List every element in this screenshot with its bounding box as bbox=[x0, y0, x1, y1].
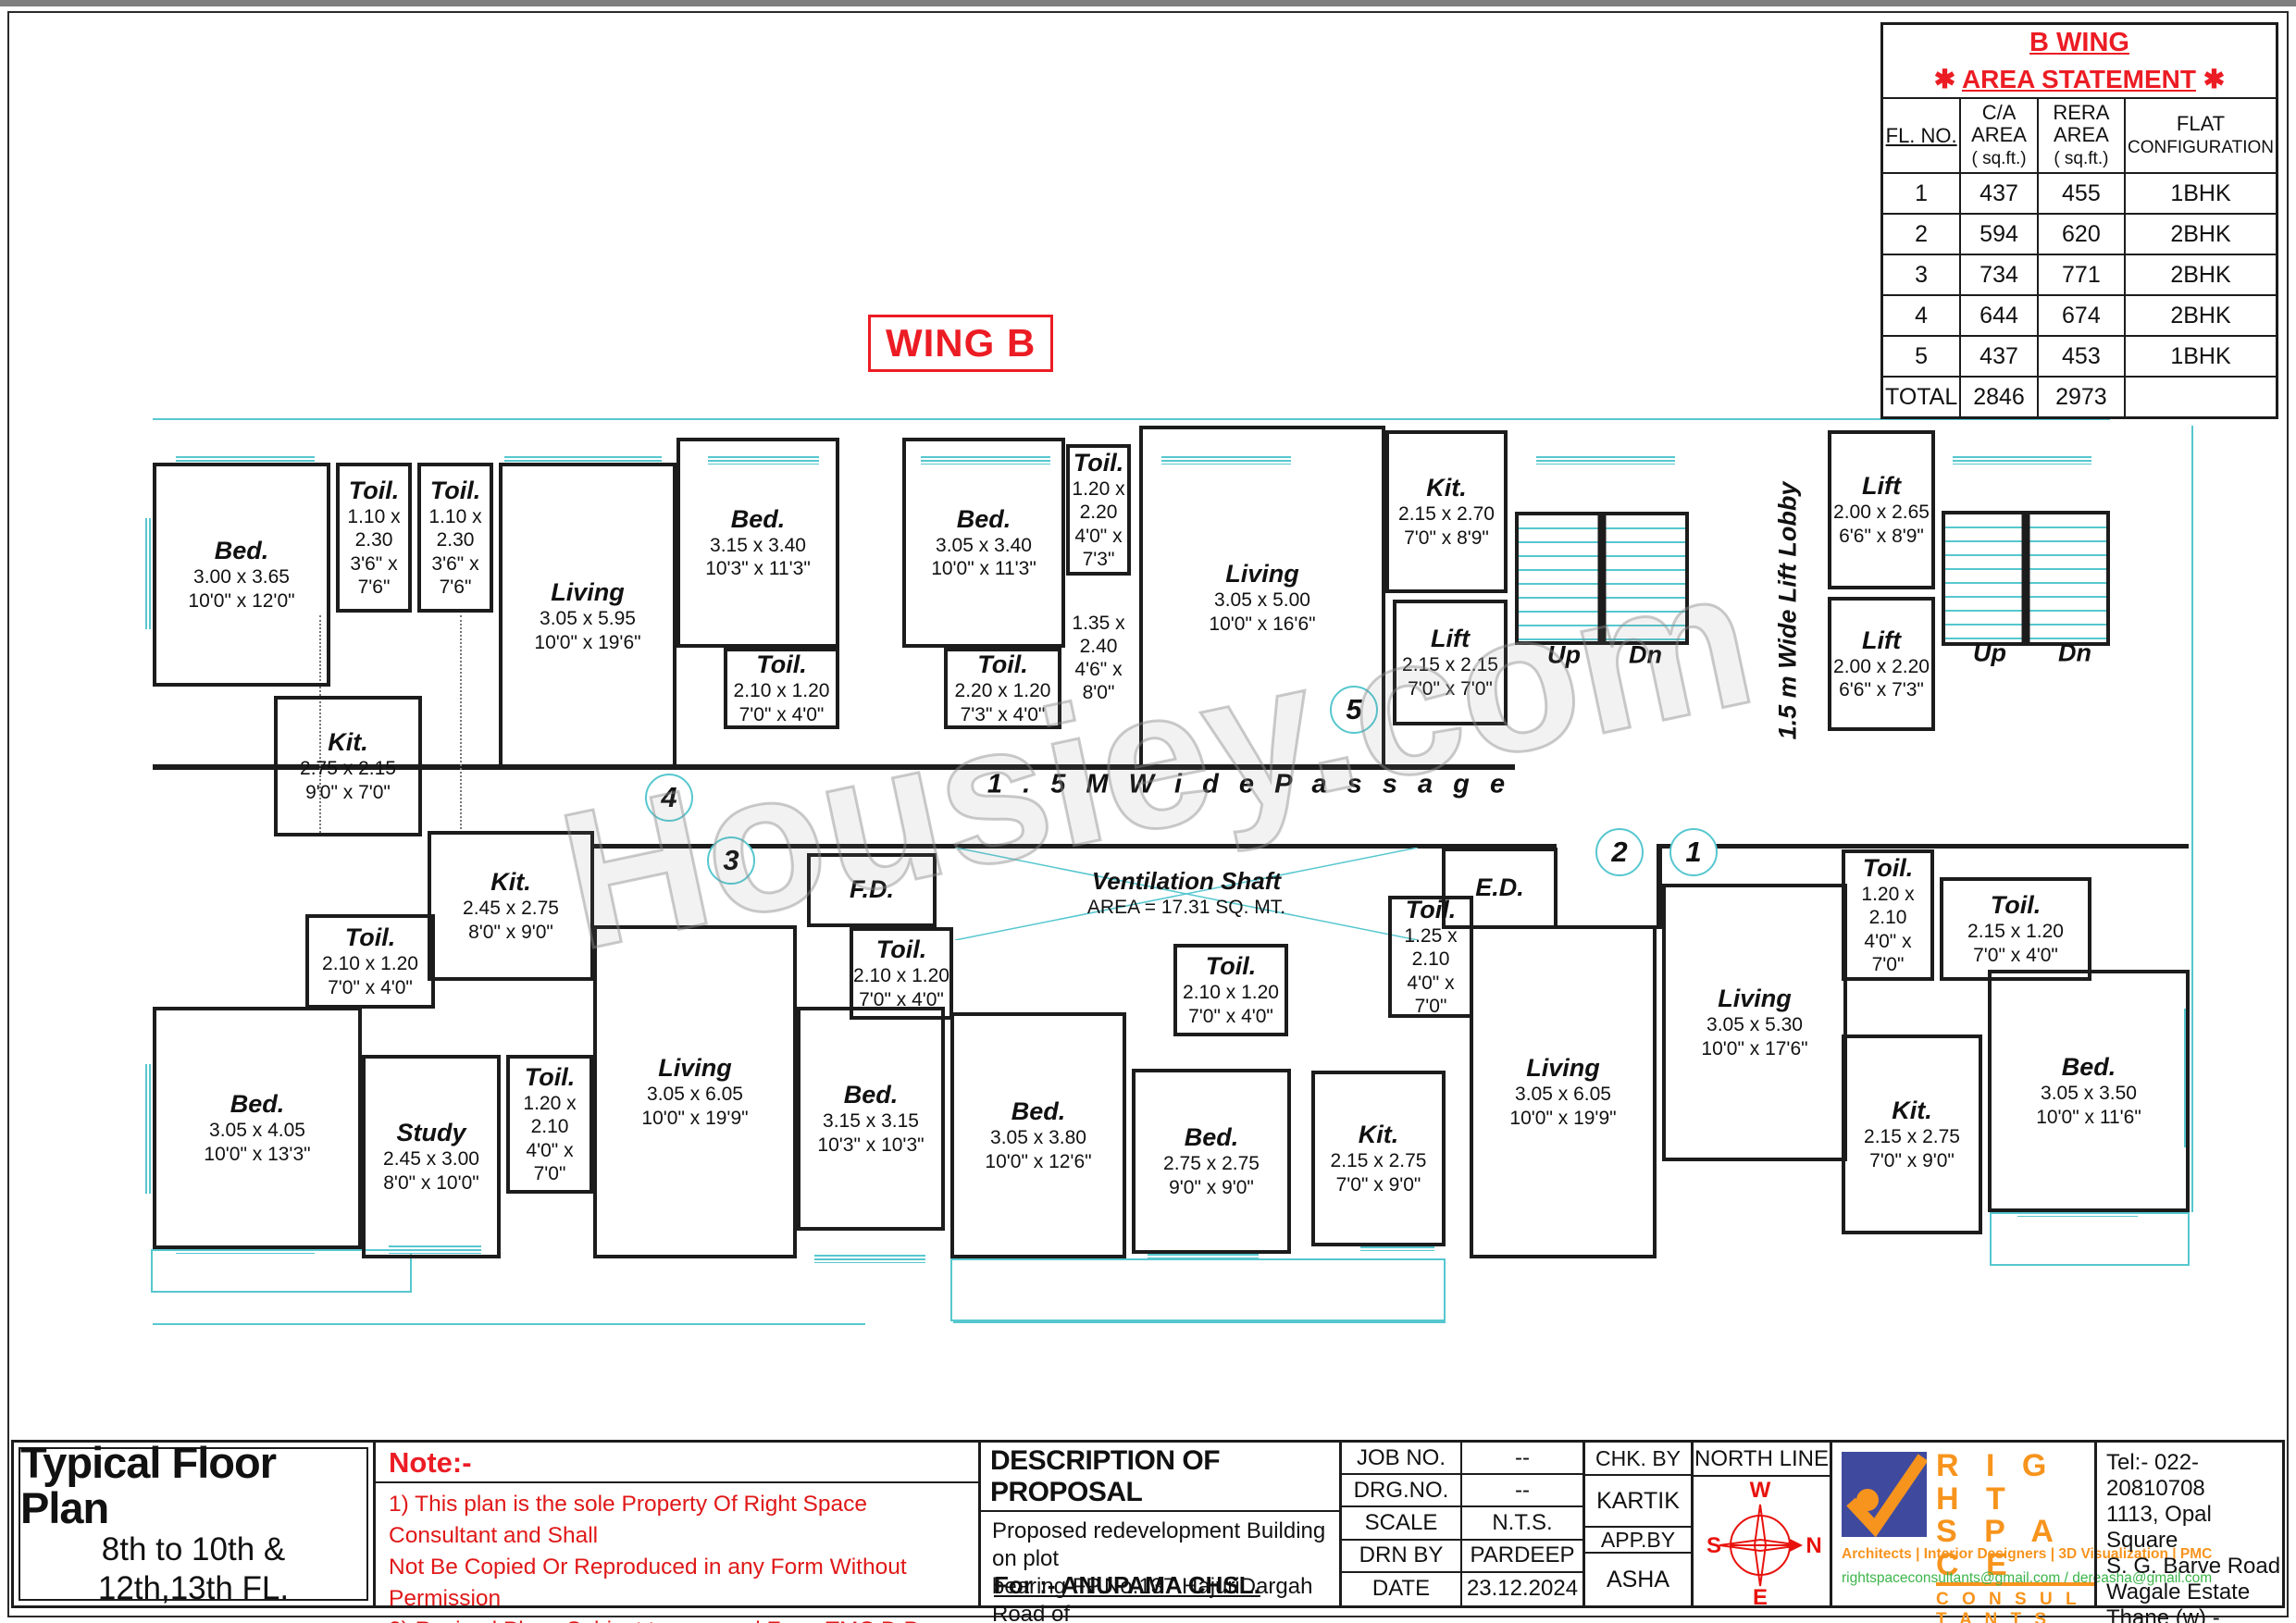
area-cell: 2BHK bbox=[2125, 295, 2277, 336]
room-dimension: 3.00 x 3.65 bbox=[193, 565, 290, 588]
accent-line bbox=[153, 418, 2110, 420]
note-line: Not Be Copied Or Reproduced in any Form … bbox=[389, 1552, 969, 1615]
room-name: Toil. bbox=[1074, 449, 1124, 477]
note-title: Note:- bbox=[376, 1443, 978, 1483]
room-dimension: 10'0" x 11'6" bbox=[2036, 1106, 2141, 1129]
room-name: Toil. bbox=[349, 477, 400, 505]
wall-segment bbox=[1662, 844, 2189, 849]
project-row-value: 23.12.2024 bbox=[1462, 1573, 1582, 1605]
room-toil: Toil.1.20 x2.204'0" x7'3" bbox=[1066, 444, 1131, 576]
room-toil: Toil.1.20 x2.104'0" x7'0" bbox=[1842, 849, 1934, 981]
room-name: Lift bbox=[1862, 472, 1901, 501]
area-cell: 674 bbox=[2038, 295, 2125, 336]
room-name: Kit. bbox=[490, 868, 531, 897]
room-name: Bed. bbox=[230, 1090, 285, 1119]
room-dimension: 6'6" x 8'9" bbox=[1839, 525, 1924, 548]
room-dimension: 10'0" x 19'6" bbox=[534, 631, 640, 654]
room-dimension: 2.75 x 2.15 bbox=[300, 757, 396, 780]
passage-label: 1 . 5 M W i d e P a s s a g e bbox=[987, 770, 1511, 800]
description-title: DESCRIPTION OF PROPOSAL bbox=[981, 1443, 1339, 1512]
project-row-label: SCALE bbox=[1342, 1507, 1462, 1538]
flat-number-badge: 4 bbox=[645, 774, 693, 822]
room-dimension: 4'0" x bbox=[526, 1139, 573, 1162]
area-cell: 437 bbox=[1960, 336, 2038, 377]
contact-line: 1113, Opal Square bbox=[2106, 1502, 2282, 1554]
contact-line: Tel:- 022-20810708 bbox=[2106, 1450, 2282, 1502]
room-dimension: 3'6" x bbox=[431, 552, 478, 576]
room-name: Lift bbox=[1862, 626, 1901, 655]
area-cell: 594 bbox=[1960, 214, 2038, 254]
room-dimension: 1.20 x bbox=[1072, 477, 1124, 501]
area-cell: 1BHK bbox=[2125, 336, 2277, 377]
room-bed: Bed.3.15 x 3.1510'3" x 10'3" bbox=[797, 1007, 945, 1231]
room-living: Living3.05 x 5.9510'0" x 19'6" bbox=[499, 463, 676, 770]
project-row-label: DRN BY bbox=[1342, 1541, 1462, 1571]
area-table-subtitle: ✱ AREA STATEMENT ✱ bbox=[1882, 61, 2277, 98]
approval-cell: CHK. BY bbox=[1585, 1443, 1691, 1476]
room-dimension: AREA = 17.31 SQ. MT. bbox=[1087, 896, 1285, 919]
room-living: Living3.05 x 6.0510'0" x 19'9" bbox=[1470, 925, 1657, 1258]
room-toil: Toil.1.10 x2.303'6" x7'6" bbox=[336, 463, 412, 613]
room-fd: F.D. bbox=[807, 853, 937, 927]
updn-label: Dn bbox=[1629, 641, 1662, 670]
room-kit: Kit.2.15 x 2.757'0" x 9'0" bbox=[1311, 1071, 1446, 1246]
room-dimension: 3.05 x 3.80 bbox=[990, 1126, 1086, 1149]
room-dimension: 2.10 x 1.20 bbox=[322, 952, 418, 975]
room-dimension: 3.05 x 4.05 bbox=[209, 1119, 305, 1142]
room-dimension: 10'3" x 11'3" bbox=[705, 557, 811, 580]
lobby-label: 1.5 m Wide Lift Lobby bbox=[1774, 482, 1803, 740]
room-dimension: 3'6" x bbox=[350, 552, 397, 576]
project-row-value: -- bbox=[1462, 1443, 1582, 1473]
project-row-label: JOB NO. bbox=[1342, 1443, 1462, 1473]
room-dimension: 8'0" x 10'0" bbox=[383, 1171, 479, 1195]
wing-title: WING B bbox=[868, 315, 1053, 372]
svg-text:S: S bbox=[1706, 1533, 1721, 1558]
room-dimension: 1.35 x bbox=[1072, 612, 1124, 635]
room-dimension: 4'0" x bbox=[1407, 972, 1454, 995]
room-dimension: 2.30 bbox=[355, 528, 393, 551]
room-dimension: 7'0" x 7'0" bbox=[1408, 677, 1493, 700]
updn-label: Dn bbox=[2058, 639, 2091, 668]
room-dimension: 4'6" x bbox=[1074, 658, 1122, 681]
accent-line bbox=[153, 1323, 865, 1325]
room-name: Bed. bbox=[215, 537, 269, 565]
room-name: Bed. bbox=[1185, 1123, 1239, 1152]
note-line: 2) Revised Plans Subject to approval Fro… bbox=[389, 1615, 969, 1623]
project-row: DRN BY PARDEEP bbox=[1342, 1541, 1582, 1573]
approval-cell: ASHA bbox=[1585, 1554, 1691, 1605]
room-dimension: 10'0" x 13'3" bbox=[204, 1143, 310, 1166]
area-table-title: B WING bbox=[1882, 24, 2277, 62]
panel-contact: Tel:- 022-208107081113, Opal SquareS. G.… bbox=[2094, 1443, 2282, 1605]
area-cell: 734 bbox=[1960, 254, 2038, 295]
room-living: Living3.05 x 5.3010'0" x 17'6" bbox=[1662, 884, 1847, 1161]
room-dimension: 10'0" x 16'6" bbox=[1209, 613, 1315, 636]
room-name: Living bbox=[658, 1054, 732, 1083]
room-dimension: 1.10 x bbox=[347, 505, 400, 528]
room-dimension: 7'0" x 4'0" bbox=[1188, 1005, 1273, 1028]
area-cell: 1BHK bbox=[2125, 173, 2277, 214]
room-name: Bed. bbox=[1011, 1097, 1066, 1126]
room-name: Toil. bbox=[977, 650, 1028, 679]
room-dimension: 2.15 x 1.20 bbox=[1967, 920, 2064, 943]
description-lines: Proposed redevelopment Building on plotb… bbox=[981, 1512, 1339, 1623]
contact-line: S. G. Barve Road bbox=[2106, 1554, 2282, 1580]
room-name: Bed. bbox=[2062, 1053, 2116, 1082]
contact-address: Tel:- 022-208107081113, Opal SquareS. G.… bbox=[2097, 1443, 2282, 1623]
project-row: JOB NO. -- bbox=[1342, 1443, 1582, 1475]
room-dimension: 6'6" x 7'3" bbox=[1839, 678, 1924, 701]
room-name: Toil. bbox=[1406, 896, 1457, 924]
panel-approvals: CHK. BYKARTIKAPP.BYASHA bbox=[1582, 1443, 1691, 1605]
room-dimension: 7'6" bbox=[440, 576, 472, 599]
room-dimension: 2.15 x 2.75 bbox=[1331, 1149, 1427, 1172]
area-col-header: FLATCONFIGURATION bbox=[2125, 98, 2277, 173]
window-marker bbox=[814, 1255, 925, 1263]
approval-cell: KARTIK bbox=[1585, 1476, 1691, 1528]
room-name: Kit. bbox=[1426, 474, 1467, 502]
panel-note: Note:- 1) This plan is the sole Property… bbox=[373, 1443, 978, 1605]
logo-mark bbox=[1842, 1452, 1927, 1537]
room-dimension: 3.05 x 5.00 bbox=[1214, 588, 1310, 612]
room-dimension: 7'0" bbox=[1872, 953, 1905, 976]
svg-text:N: N bbox=[1806, 1533, 1821, 1558]
room-dimension: 2.10 bbox=[1412, 948, 1450, 971]
flat-number-badge: 2 bbox=[1595, 828, 1644, 876]
room-dimension: 2.10 x 1.20 bbox=[853, 964, 949, 987]
project-row-value: PARDEEP bbox=[1462, 1541, 1582, 1571]
area-cell: 620 bbox=[2038, 214, 2125, 254]
room-dimension: 2.00 x 2.65 bbox=[1833, 501, 1930, 524]
flat-number-badge: 3 bbox=[707, 836, 755, 885]
room-dimension: 7'0" x 8'9" bbox=[1404, 527, 1489, 550]
panel-north: NORTH LINE W S N E bbox=[1691, 1443, 1830, 1605]
panel-logo: R I G H T S P A C E C O N S U L T A N T … bbox=[1830, 1443, 2094, 1605]
room-dimension: 7'3" bbox=[1083, 548, 1115, 571]
room-bed: Bed.3.15 x 3.4010'3" x 11'3" bbox=[676, 438, 839, 648]
room-dimension: 7'3" x 4'0" bbox=[961, 703, 1046, 726]
area-cell: 2973 bbox=[2038, 377, 2125, 418]
room-living: Living3.05 x 6.0510'0" x 19'9" bbox=[593, 925, 797, 1258]
room-dimension: 2.00 x 2.20 bbox=[1833, 655, 1930, 678]
area-cell: 1 bbox=[1882, 173, 1961, 214]
project-row-label: DRG.NO. bbox=[1342, 1475, 1462, 1505]
room-dimension: 2.20 x 1.20 bbox=[955, 679, 1051, 702]
room-dimension: 7'0" bbox=[1415, 995, 1447, 1018]
project-row-label: DATE bbox=[1342, 1573, 1462, 1605]
room-ventilationshaft: Ventilation ShaftAREA = 17.31 SQ. MT. bbox=[955, 848, 1418, 940]
room-dimension: 4'0" x bbox=[1074, 525, 1122, 548]
room-dimension: 3.05 x 6.05 bbox=[647, 1083, 743, 1106]
room-dimension: 10'0" x 12'0" bbox=[188, 589, 294, 613]
room-dimension: 3.05 x 5.95 bbox=[540, 607, 636, 630]
room-toil: Toil.2.10 x 1.207'0" x 4'0" bbox=[1173, 944, 1288, 1036]
project-row: SCALE N.T.S. bbox=[1342, 1507, 1582, 1540]
room-toil: Toil.2.15 x 1.207'0" x 4'0" bbox=[1940, 877, 2091, 981]
room-study: Study2.45 x 3.008'0" x 10'0" bbox=[362, 1055, 501, 1258]
area-cell: 2BHK bbox=[2125, 254, 2277, 295]
contact-line: Thane (w) - 400604 bbox=[2106, 1605, 2282, 1623]
area-cell: 437 bbox=[1960, 173, 2038, 214]
room-name: Toil. bbox=[345, 923, 396, 952]
room-kit: Kit.2.45 x 2.758'0" x 9'0" bbox=[428, 831, 594, 981]
checkmark-icon bbox=[1842, 1452, 1927, 1537]
balcony-strip bbox=[1990, 1212, 2190, 1266]
room-dimension: 10'0" x 12'6" bbox=[985, 1150, 1091, 1173]
project-row: DATE 23.12.2024 bbox=[1342, 1573, 1582, 1605]
room-name: Bed. bbox=[844, 1081, 899, 1109]
area-cell: 5 bbox=[1882, 336, 1961, 377]
room-bed: Bed.3.05 x 3.5010'0" x 11'6" bbox=[1988, 970, 2190, 1212]
room-dimension: 2.10 x 1.20 bbox=[1183, 981, 1279, 1004]
room-dimension: 10'3" x 10'3" bbox=[817, 1134, 924, 1157]
room-name: Living bbox=[551, 578, 625, 607]
room-name: Toil. bbox=[1206, 952, 1257, 981]
flat-number-badge: 1 bbox=[1669, 828, 1718, 876]
room-toil: Toil.2.10 x 1.207'0" x 4'0" bbox=[305, 914, 435, 1009]
area-cell: 2 bbox=[1882, 214, 1961, 254]
room-kit: Kit.2.75 x 2.159'0" x 7'0" bbox=[274, 696, 422, 836]
for-client-line: For :- ANUPAMA CHSL. bbox=[994, 1571, 1260, 1600]
room-dimension: 7'0" bbox=[534, 1162, 566, 1185]
room-dimension: 1.20 x bbox=[523, 1092, 576, 1115]
room-name: Toil. bbox=[1863, 854, 1914, 883]
panel-project-table: JOB NO. -- DRG.NO. -- SCALE N.T.S. DRN B… bbox=[1339, 1443, 1582, 1605]
stair-divider bbox=[1598, 512, 1607, 645]
room-name: Living bbox=[1526, 1054, 1600, 1083]
room-dimension: 7'0" x 4'0" bbox=[739, 703, 825, 726]
room-dimension: 10'0" x 17'6" bbox=[1701, 1037, 1807, 1060]
room-dimension: 10'0" x 19'9" bbox=[641, 1107, 748, 1130]
room-dimension: 2.10 x 1.20 bbox=[734, 679, 830, 702]
room-dimension: 7'0" x 9'0" bbox=[1336, 1173, 1421, 1196]
room-dimension: 2.30 bbox=[437, 528, 475, 551]
drawing-subtitle-2: 12th,13th FL. bbox=[98, 1569, 289, 1608]
room-toil: Toil.1.10 x2.303'6" x7'6" bbox=[417, 463, 493, 613]
room-bed: Bed.3.05 x 3.8010'0" x 12'6" bbox=[950, 1012, 1126, 1258]
updn-label: Up bbox=[1973, 639, 2006, 668]
room-dimension: 7'0" x 4'0" bbox=[328, 976, 413, 999]
room-kit: Kit.2.15 x 2.707'0" x 8'9" bbox=[1385, 430, 1508, 593]
room-dimension: 1.20 x bbox=[1861, 883, 1914, 906]
room-kit: Kit.2.15 x 2.757'0" x 9'0" bbox=[1842, 1035, 1982, 1234]
room-toil: Toil.1.25 x2.104'0" x7'0" bbox=[1388, 896, 1473, 1018]
logo-word-right: R I G H T bbox=[1936, 1450, 2094, 1516]
area-col-header: C/A AREA( sq.ft.) bbox=[1960, 98, 2038, 173]
accent-line bbox=[953, 1321, 1446, 1323]
room-dimension: 2.10 bbox=[531, 1115, 569, 1138]
compass-icon: W S N E bbox=[1694, 1477, 1827, 1606]
room-dimension: 2.45 x 2.75 bbox=[463, 897, 559, 920]
room-name: Kit. bbox=[328, 728, 368, 757]
room-toil: Toil.1.20 x2.104'0" x7'0" bbox=[506, 1055, 593, 1194]
room-name: Toil. bbox=[876, 935, 927, 964]
description-line: Proposed redevelopment Building on plot bbox=[992, 1518, 1339, 1573]
room-dimension: 1.10 x bbox=[428, 505, 481, 528]
area-cell: 644 bbox=[1960, 295, 2038, 336]
room-dimension: 2.15 x 2.75 bbox=[1864, 1125, 1960, 1148]
room-dimension: 2.10 bbox=[1869, 906, 1907, 929]
room-name: Bed. bbox=[731, 505, 786, 534]
updn-label: Up bbox=[1547, 641, 1581, 670]
room-dimension: 3.15 x 3.15 bbox=[823, 1109, 919, 1133]
area-cell: 453 bbox=[2038, 336, 2125, 377]
room-name: Kit. bbox=[1892, 1096, 1932, 1125]
room-dimension: 2.15 x 2.70 bbox=[1398, 502, 1495, 526]
area-cell: 2BHK bbox=[2125, 214, 2277, 254]
drawing-sheet: Bed.3.00 x 3.6510'0" x 12'0"Toil.1.10 x2… bbox=[0, 0, 2296, 1623]
room-dimension: 8'0" x 9'0" bbox=[468, 921, 553, 944]
room-dimension: 3.05 x 5.30 bbox=[1706, 1013, 1803, 1036]
room-lift: Lift2.00 x 2.206'6" x 7'3" bbox=[1828, 597, 1935, 731]
note-line: 1) This plan is the sole Property Of Rig… bbox=[389, 1489, 969, 1552]
staircase bbox=[1942, 511, 2110, 646]
panel-description: DESCRIPTION OF PROPOSAL Proposed redevel… bbox=[978, 1443, 1339, 1605]
room-bed: Bed.2.75 x 2.759'0" x 9'0" bbox=[1132, 1069, 1291, 1254]
room-dimension: 2.15 x 2.15 bbox=[1402, 653, 1498, 676]
room-name: E.D. bbox=[1475, 873, 1524, 902]
north-line-title: NORTH LINE bbox=[1694, 1443, 1830, 1477]
room-bed: Bed.3.05 x 4.0510'0" x 13'3" bbox=[153, 1007, 362, 1249]
room-dimension: 10'0" x 19'9" bbox=[1509, 1107, 1616, 1130]
project-row-value: -- bbox=[1462, 1475, 1582, 1505]
title-block: Typical Floor Plan 8th to 10th & 12th,13… bbox=[11, 1440, 2285, 1608]
drawing-title: Typical Floor Plan bbox=[20, 1440, 366, 1531]
room-name: F.D. bbox=[850, 875, 894, 904]
room-dimension: 3.15 x 3.40 bbox=[710, 534, 806, 557]
window-marker bbox=[1953, 456, 2091, 465]
area-cell: 2846 bbox=[1960, 377, 2038, 418]
balcony-strip bbox=[950, 1258, 1446, 1321]
room-lift: Lift2.00 x 2.656'6" x 8'9" bbox=[1828, 430, 1935, 589]
drawing-subtitle-1: 8th to 10th & bbox=[102, 1530, 285, 1569]
room-toil: Toil.2.10 x 1.207'0" x 4'0" bbox=[724, 648, 839, 729]
room-dimension: 7'6" bbox=[358, 576, 391, 599]
area-statement-table: B WING✱ AREA STATEMENT ✱FL. NO.C/A AREA(… bbox=[1880, 22, 2278, 419]
note-lines: 1) This plan is the sole Property Of Rig… bbox=[376, 1483, 978, 1623]
room-name: Lift bbox=[1431, 625, 1470, 653]
area-cell: TOTAL bbox=[1882, 377, 1961, 418]
svg-text:E: E bbox=[1753, 1585, 1768, 1606]
room-dimension: 2.75 x 2.75 bbox=[1163, 1152, 1260, 1175]
approval-cell: APP.BY bbox=[1585, 1528, 1691, 1554]
room-dimension: 3.05 x 3.40 bbox=[936, 534, 1032, 557]
grid-dotted-line bbox=[460, 615, 462, 833]
room-dimension: 9'0" x 7'0" bbox=[305, 781, 391, 804]
room-bed: Bed.3.00 x 3.6510'0" x 12'0" bbox=[153, 463, 330, 687]
room-dimension: 2.40 bbox=[1080, 635, 1118, 658]
area-col-header: FL. NO. bbox=[1882, 98, 1961, 173]
project-row: DRG.NO. -- bbox=[1342, 1475, 1582, 1507]
logo-word-consultants: C O N S U L T A N T S bbox=[1936, 1590, 2094, 1623]
room-dimension: 4'0" x bbox=[1864, 930, 1911, 953]
room-name: Toil. bbox=[1991, 891, 2042, 920]
room-name: Living bbox=[1225, 560, 1299, 588]
room-name: Kit. bbox=[1359, 1121, 1399, 1149]
staircase bbox=[1515, 512, 1689, 645]
room-toil: Toil.2.10 x 1.207'0" x 4'0" bbox=[850, 927, 953, 1020]
area-cell: 3 bbox=[1882, 254, 1961, 295]
contact-line: Wagale Estate bbox=[2106, 1580, 2282, 1605]
room-name: Ventilation Shaft bbox=[1092, 868, 1281, 896]
area-col-header: RERA AREA( sq.ft.) bbox=[2038, 98, 2125, 173]
room-dimension: 7'0" x 4'0" bbox=[1973, 944, 2058, 967]
room-dimension: 7'0" x 9'0" bbox=[1869, 1149, 1955, 1172]
room-name: Toil. bbox=[525, 1063, 576, 1092]
room-dimension: 2.45 x 3.00 bbox=[383, 1147, 479, 1171]
room-name: Study bbox=[396, 1119, 465, 1147]
room-area: 1.35 x2.404'6" x8'0" bbox=[1060, 590, 1137, 725]
room-dimension: 9'0" x 9'0" bbox=[1169, 1176, 1254, 1199]
panel-drawing-title: Typical Floor Plan 8th to 10th & 12th,13… bbox=[14, 1443, 373, 1605]
flat-number-badge: 5 bbox=[1330, 686, 1378, 734]
area-cell: 4 bbox=[1882, 295, 1961, 336]
room-dimension: 10'0" x 11'3" bbox=[931, 557, 1036, 580]
stair-divider bbox=[2022, 511, 2030, 646]
svg-text:W: W bbox=[1750, 1478, 1771, 1503]
area-cell bbox=[2125, 377, 2277, 418]
room-toil: Toil.2.20 x 1.207'3" x 4'0" bbox=[944, 648, 1061, 729]
room-dimension: 3.05 x 6.05 bbox=[1515, 1083, 1611, 1106]
room-name: Toil. bbox=[756, 650, 807, 679]
project-row-value: N.T.S. bbox=[1462, 1507, 1582, 1538]
room-bed: Bed.3.05 x 3.4010'0" x 11'3" bbox=[902, 438, 1065, 648]
room-dimension: 8'0" bbox=[1083, 681, 1115, 704]
room-lift: Lift2.15 x 2.157'0" x 7'0" bbox=[1393, 600, 1508, 725]
area-cell: 455 bbox=[2038, 173, 2125, 214]
room-dimension: 1.25 x bbox=[1404, 924, 1457, 948]
room-dimension: 2.20 bbox=[1080, 501, 1118, 524]
window-marker bbox=[1536, 456, 1675, 465]
room-name: Toil. bbox=[430, 477, 481, 505]
room-name: Living bbox=[1718, 985, 1792, 1013]
room-dimension: 3.05 x 3.50 bbox=[2041, 1082, 2137, 1105]
room-name: Bed. bbox=[957, 505, 1011, 534]
area-cell: 771 bbox=[2038, 254, 2125, 295]
